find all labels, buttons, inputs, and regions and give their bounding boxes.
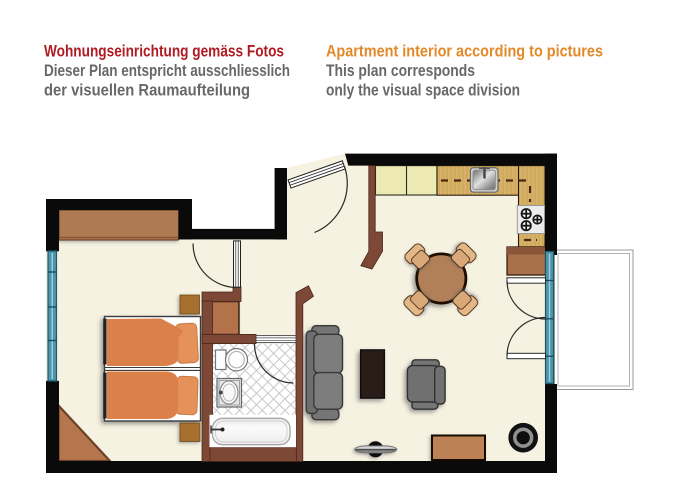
svg-text:only the visual space division: only the visual space division <box>326 81 520 100</box>
svg-text:Apartment interior according t: Apartment interior according to pictures <box>326 42 603 61</box>
svg-text:der visuellen Raumaufteilung: der visuellen Raumaufteilung <box>44 81 250 100</box>
svg-text:This plan corresponds: This plan corresponds <box>326 61 475 80</box>
svg-text:Wohnungseinrichtung gemäss Fot: Wohnungseinrichtung gemäss Fotos <box>44 42 284 61</box>
svg-text:Dieser Plan entspricht ausschl: Dieser Plan entspricht ausschliesslich <box>44 61 290 80</box>
